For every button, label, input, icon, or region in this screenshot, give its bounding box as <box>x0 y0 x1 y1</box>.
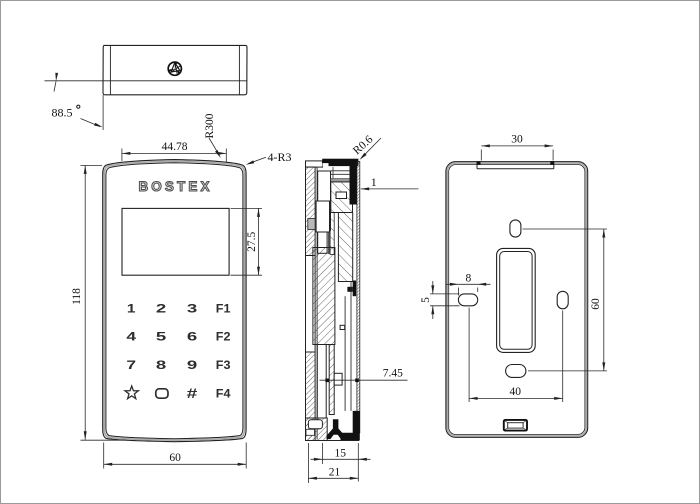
svg-text:118: 118 <box>71 288 83 305</box>
svg-text:15: 15 <box>335 447 347 459</box>
svg-text:4: 4 <box>126 330 136 344</box>
svg-text:#: # <box>187 385 198 401</box>
svg-text:F2: F2 <box>216 330 231 344</box>
svg-text:7: 7 <box>126 358 136 372</box>
svg-text:F4: F4 <box>216 387 231 401</box>
svg-text:R0.6: R0.6 <box>351 133 376 157</box>
svg-text:8: 8 <box>156 359 167 372</box>
svg-text:F1: F1 <box>216 302 231 316</box>
svg-text:5: 5 <box>156 330 167 343</box>
svg-text:1: 1 <box>371 175 377 189</box>
svg-text:60: 60 <box>590 298 602 310</box>
svg-text:60: 60 <box>169 452 181 464</box>
svg-text:8: 8 <box>466 272 472 284</box>
svg-text:3: 3 <box>187 302 198 315</box>
svg-text:30: 30 <box>511 134 523 146</box>
svg-text:9: 9 <box>187 359 198 372</box>
svg-text:4-R3: 4-R3 <box>268 150 292 164</box>
svg-text:44.78: 44.78 <box>162 141 188 153</box>
svg-text:2: 2 <box>156 302 167 315</box>
svg-text:27.5: 27.5 <box>246 231 258 251</box>
svg-text:21: 21 <box>329 466 341 478</box>
svg-text:1: 1 <box>127 301 136 315</box>
svg-text:88.5: 88.5 <box>52 106 73 120</box>
svg-text:5: 5 <box>420 297 432 303</box>
svg-text:7.45: 7.45 <box>383 368 403 380</box>
svg-text:40: 40 <box>510 386 522 398</box>
svg-text:R300: R300 <box>204 113 216 138</box>
svg-text:F3: F3 <box>216 358 231 372</box>
svg-text:BOSTEX: BOSTEX <box>138 179 212 194</box>
svg-text:6: 6 <box>187 330 198 343</box>
